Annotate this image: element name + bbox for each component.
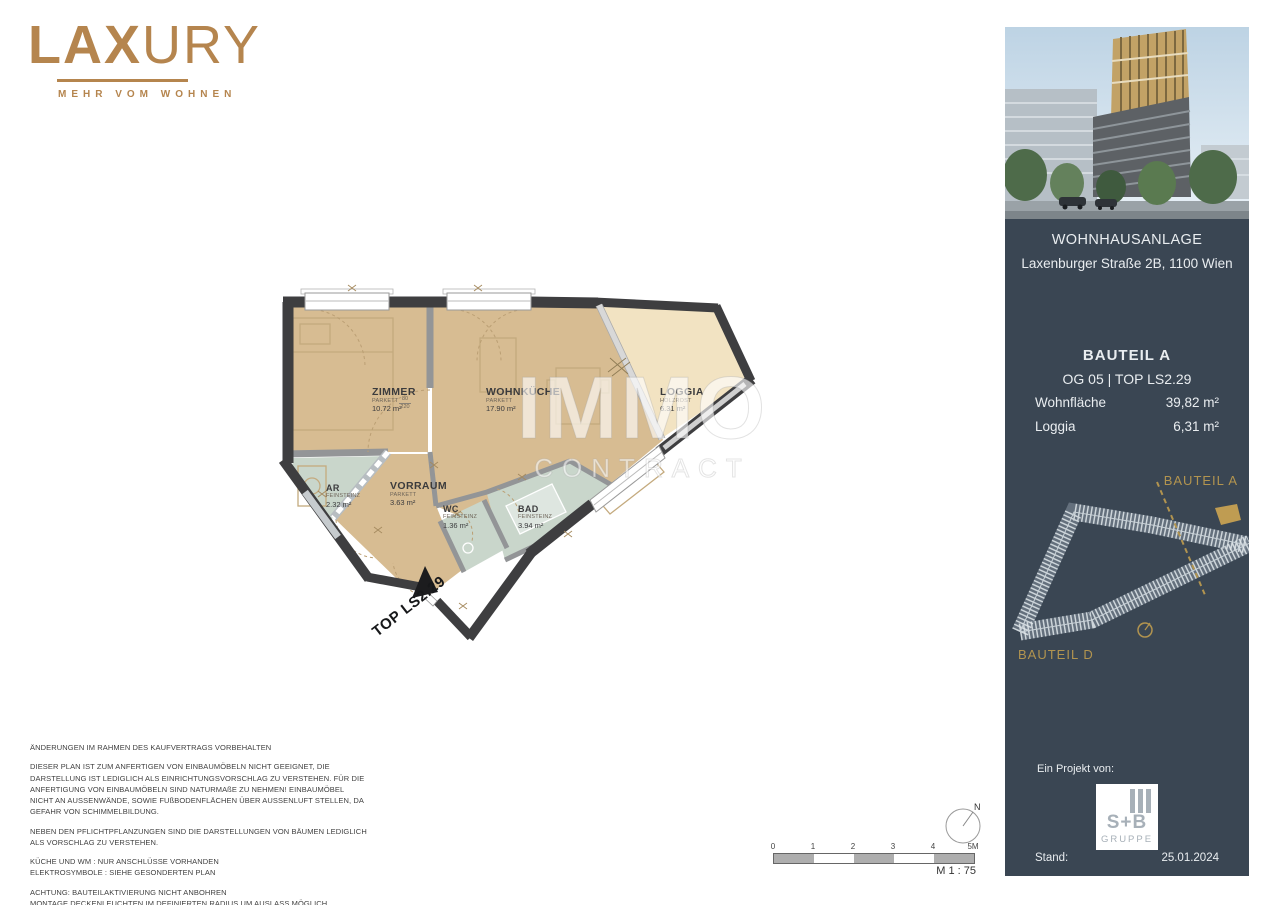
building-photo (1005, 27, 1249, 219)
brand-logo: LAXURY MEHR VOM WOHNEN (28, 18, 261, 72)
brand-bold-part: LAX (28, 15, 142, 75)
brand-tagline: MEHR VOM WOHNEN (58, 90, 236, 100)
disclaimer-paragraph: ACHTUNG: BAUTEILAKTIVIERUNG NICHT ANBOHR… (30, 887, 368, 905)
compass-north-icon: N (940, 798, 992, 850)
room-label: BADFEINSTEINZ3.94 m² (518, 504, 552, 530)
scalebar (773, 853, 975, 864)
room-label: WOHNKÜCHEPARKETT17.90 m² (486, 386, 560, 414)
disclaimer-paragraph: DIESER PLAN IST ZUM ANFERTIGEN VON EINBA… (30, 761, 368, 817)
room-label: LOGGIAHOLZROST6.31 m² (660, 386, 704, 414)
brand-underline (57, 79, 188, 82)
door-dimension: 80 220 (390, 396, 420, 410)
sb-logo-sub: GRUPPE (1096, 834, 1158, 845)
sb-logo-name: S+B (1096, 812, 1158, 834)
disclaimer-paragraph: NEBEN DEN PFLICHTPFLANZUNGEN SIND DIE DA… (30, 826, 368, 849)
bauteil-title: BAUTEIL A (1005, 347, 1249, 364)
disclaimer-paragraph: ÄNDERUNGEN IM RAHMEN DES KAUFVERTRAGS VO… (30, 742, 368, 753)
scalebar-tick: 2 (851, 842, 855, 851)
area-row: Loggia6,31 m² (1005, 419, 1249, 434)
sb-logo-bars-icon (1130, 789, 1151, 813)
info-panel: WOHNHAUSANLAGE Laxenburger Straße 2B, 11… (1005, 219, 1249, 876)
disclaimer-text: ÄNDERUNGEN IM RAHMEN DES KAUFVERTRAGS VO… (30, 742, 368, 905)
project-by-label: Ein Projekt von: (1037, 763, 1114, 775)
scalebar-tick: 1 (811, 842, 815, 851)
floorplan-document-page: LAXURY MEHR VOM WOHNEN (0, 0, 1280, 905)
siteplan-label-bauteil-d: BAUTEIL D (1018, 647, 1094, 662)
brand-wordmark: LAXURY (28, 15, 261, 75)
stand-date: 25.01.2024 (1161, 852, 1219, 864)
brand-light-part: URY (142, 15, 261, 75)
svg-text:N: N (974, 802, 981, 812)
floor-plan-drawing (255, 272, 775, 657)
scalebar-tick: 0 (771, 842, 775, 851)
scalebar-tick: 3 (891, 842, 895, 851)
door-dim-width: 80 (399, 396, 411, 404)
stand-label: Stand: (1035, 852, 1068, 864)
sb-gruppe-logo: S+B GRUPPE (1096, 784, 1158, 850)
stand-row: Stand: 25.01.2024 (1005, 852, 1249, 864)
area-row: Wohnfläche39,82 m² (1005, 395, 1249, 410)
siteplan-label-bauteil-a: BAUTEIL A (1164, 473, 1238, 488)
project-title: WOHNHAUSANLAGE (1005, 232, 1249, 248)
room-label: WCFEINSTEINZ1.36 m² (443, 504, 477, 530)
site-plan (1005, 470, 1249, 676)
scalebar-tick: 4 (931, 842, 935, 851)
unit-line: OG 05 | TOP LS2.29 (1005, 371, 1249, 387)
project-address: Laxenburger Straße 2B, 1100 Wien (1005, 256, 1249, 271)
room-label: VORRAUMPARKETT3.63 m² (390, 480, 447, 508)
room-label: ARFEINSTEINZ2.32 m² (326, 483, 360, 509)
scale-ratio-label: M 1 : 75 (898, 865, 976, 877)
disclaimer-paragraph: KÜCHE UND WM : NUR ANSCHLÜSSE VORHANDEN … (30, 856, 368, 879)
door-dim-height: 220 (400, 404, 409, 410)
